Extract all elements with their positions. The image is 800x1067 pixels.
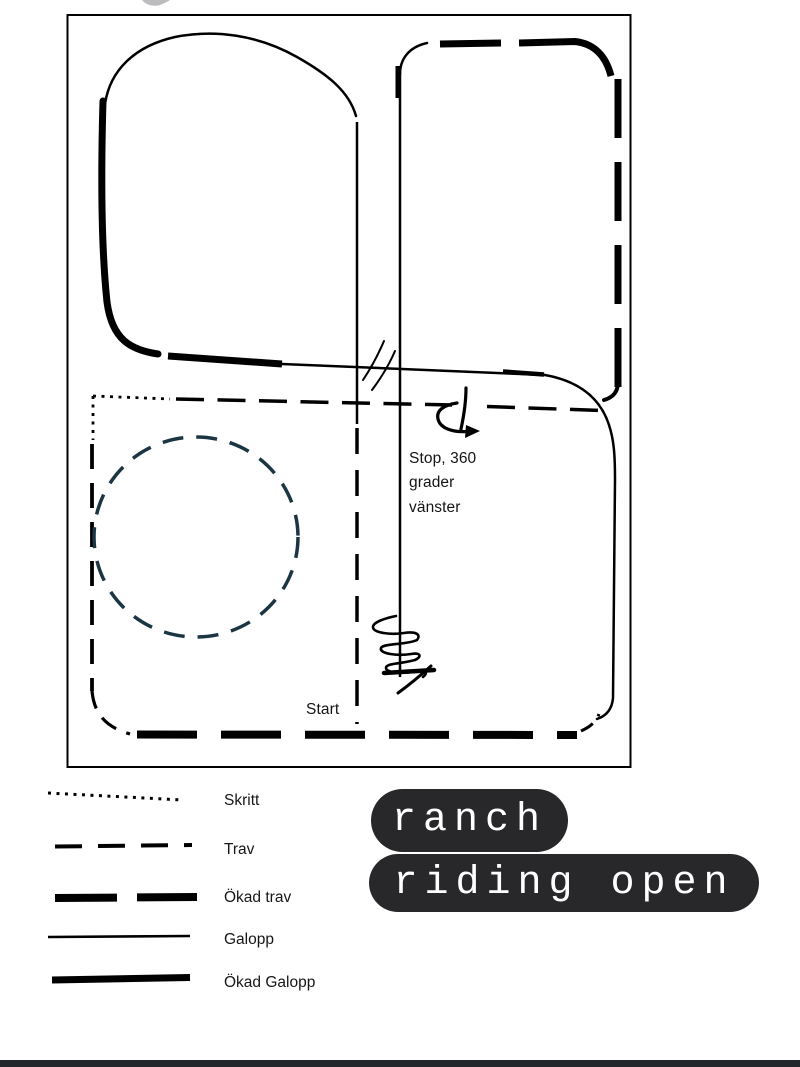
turn-360-bar	[461, 388, 466, 429]
start-label: Start	[306, 698, 339, 722]
loop2-corner-topleft	[400, 43, 427, 74]
okadtrav-bottom	[137, 735, 577, 736]
trav-circle	[94, 437, 298, 637]
title-badge-riding-open-text: riding open	[393, 861, 734, 906]
legend-swatch-trav	[55, 845, 192, 847]
loop2-top-dash2-corner	[519, 42, 611, 77]
transition-slashes	[363, 341, 395, 390]
loop2-top-dash1	[440, 43, 501, 44]
legend-swatch-okad-trav	[55, 897, 197, 898]
legend-swatch-okad-galopp	[52, 978, 190, 981]
loop1-bottom-thick	[168, 356, 282, 364]
diagonal-thick-overlap	[503, 372, 544, 375]
trav-left-corner	[92, 691, 130, 734]
legend-swatch-galopp	[48, 936, 190, 937]
loop1-top-arc	[105, 34, 356, 116]
stop-note-line3: vänster	[409, 496, 476, 520]
skritt-dotted-horizontal	[93, 396, 170, 399]
title-badge-ranch: ranch	[371, 789, 568, 852]
trav-horizontal-b	[487, 407, 601, 411]
loop1-left-thick	[102, 101, 158, 354]
right-curve-galopp	[545, 375, 615, 719]
title-badge-riding-open: riding open	[369, 854, 759, 912]
legend-label-okad-trav: Ökad trav	[224, 889, 291, 907]
stop-note-line1: Stop, 360	[409, 447, 476, 471]
legend-label-okad-galopp: Ökad Galopp	[224, 974, 315, 992]
stop-note: Stop, 360 grader vänster	[409, 447, 476, 520]
arena-border	[68, 15, 631, 767]
legend-swatch-skritt	[48, 793, 183, 800]
trav-bottomright-corner	[581, 714, 599, 731]
top-smudge	[142, 0, 170, 6]
trav-horizontal-a	[176, 399, 452, 405]
legend-label-skritt: Skritt	[224, 792, 259, 810]
loop2-right-hook	[604, 387, 618, 400]
legend-label-galopp: Galopp	[224, 931, 274, 949]
stop-note-line2: grader	[409, 471, 476, 495]
turn-360-arrowhead	[465, 425, 480, 438]
bottom-bar	[0, 1060, 800, 1067]
pattern-sheet: Stop, 360 grader vänster Start Skritt Tr…	[0, 0, 800, 1067]
title-badge-ranch-text: ranch	[392, 798, 547, 843]
legend-label-trav: Trav	[224, 841, 254, 859]
